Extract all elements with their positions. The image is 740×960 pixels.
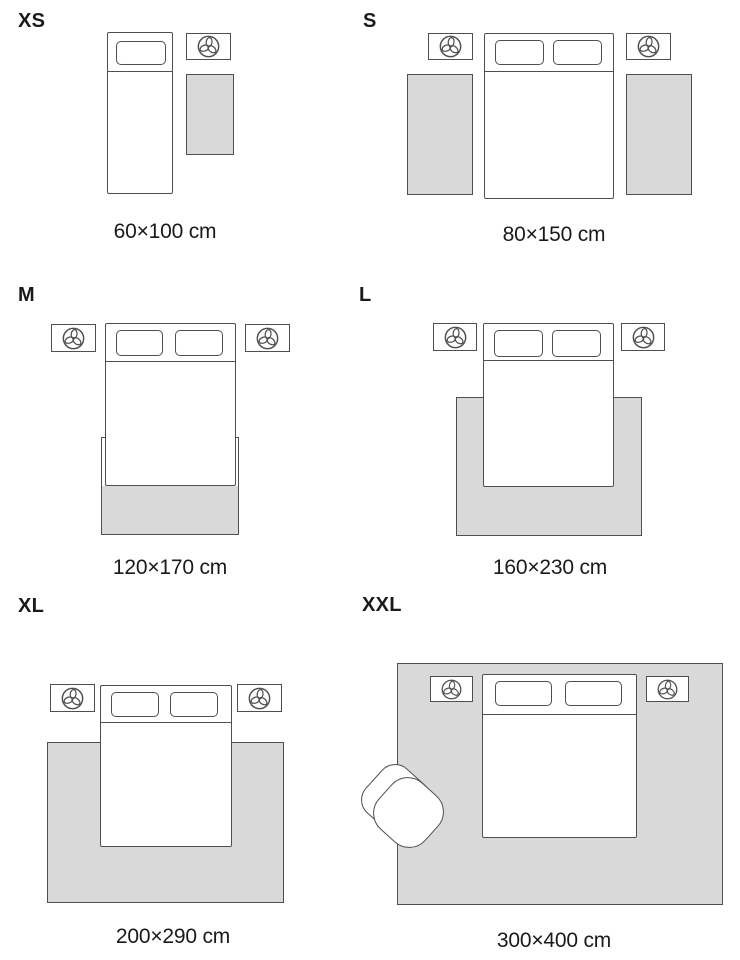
pillow — [495, 681, 552, 706]
dimension-label-xxl: 300×400 cm — [454, 930, 654, 951]
nightstand — [646, 676, 689, 702]
nightstand — [430, 676, 473, 702]
panel-xxl: XXL 300×400 cm — [0, 0, 740, 960]
double-bed — [482, 674, 637, 838]
rug-size-guide: XS 60×100 cm S 80×150 cm M — [0, 0, 740, 960]
plant-icon — [657, 679, 678, 700]
pillow — [565, 681, 622, 706]
plant-icon — [441, 679, 462, 700]
size-label-xxl: XXL — [362, 595, 402, 615]
